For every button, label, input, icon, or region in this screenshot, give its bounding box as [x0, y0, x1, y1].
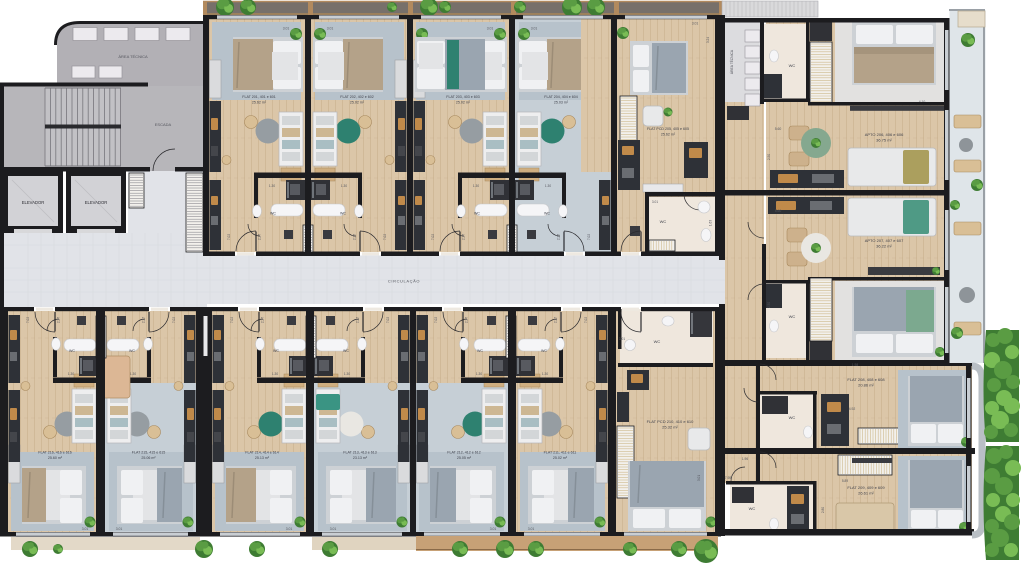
svg-text:7.02: 7.02 [383, 234, 387, 240]
svg-text:1.30: 1.30 [545, 184, 551, 188]
svg-text:WC: WC [340, 212, 346, 216]
svg-text:5.60: 5.60 [775, 209, 782, 213]
svg-text:3.01: 3.01 [116, 527, 123, 531]
svg-text:FLAT 209, 409 e 609: FLAT 209, 409 e 609 [847, 485, 885, 490]
svg-text:7.02: 7.02 [386, 317, 390, 323]
svg-text:7.02: 7.02 [434, 317, 438, 323]
svg-text:FLAT 215, 415 e 615: FLAT 215, 415 e 615 [132, 451, 165, 455]
svg-text:1.63: 1.63 [709, 220, 713, 226]
svg-text:1.30: 1.30 [269, 184, 275, 188]
svg-text:2.27: 2.27 [142, 317, 146, 323]
svg-text:FLAT 208, 408 e 608: FLAT 208, 408 e 608 [847, 377, 885, 382]
svg-text:FLAT 203, 403 e 603: FLAT 203, 403 e 603 [446, 95, 479, 99]
svg-text:FLAT 201, 401 e 601: FLAT 201, 401 e 601 [242, 95, 275, 99]
svg-text:2.27: 2.27 [462, 234, 466, 240]
svg-text:WC: WC [129, 349, 135, 353]
svg-text:3.01: 3.01 [528, 527, 535, 531]
svg-text:FLAT PCD 210, 410 e 610: FLAT PCD 210, 410 e 610 [647, 419, 695, 424]
svg-text:1.30: 1.30 [476, 372, 482, 376]
svg-text:1.98: 1.98 [852, 363, 858, 367]
svg-text:3.01: 3.01 [286, 527, 293, 531]
svg-text:26.61 m²: 26.61 m² [858, 491, 874, 496]
svg-text:1.30: 1.30 [272, 372, 278, 376]
svg-text:25.60 m²: 25.60 m² [48, 456, 63, 460]
svg-text:WC: WC [477, 349, 483, 353]
svg-text:1.30: 1.30 [341, 184, 347, 188]
svg-text:25.02 m²: 25.02 m² [553, 456, 568, 460]
svg-text:3.01: 3.01 [283, 27, 290, 31]
svg-text:CIRCULAÇÃO: CIRCULAÇÃO [388, 279, 420, 284]
svg-text:7.02: 7.02 [172, 317, 176, 323]
svg-text:36.75 m²: 36.75 m² [876, 138, 892, 143]
svg-text:FLAT 213, 413 e 613: FLAT 213, 413 e 613 [343, 451, 376, 455]
svg-text:WC: WC [789, 314, 796, 319]
svg-text:2.50: 2.50 [767, 302, 771, 308]
svg-text:3.01: 3.01 [619, 337, 625, 341]
svg-text:4.92: 4.92 [849, 407, 856, 411]
svg-text:2.27: 2.27 [356, 317, 360, 323]
svg-text:2.80: 2.80 [821, 507, 825, 513]
svg-text:25.32 m²: 25.32 m² [662, 425, 678, 430]
svg-text:2.50: 2.50 [767, 154, 771, 160]
svg-text:20.86 m²: 20.86 m² [858, 383, 874, 388]
svg-text:3.01: 3.01 [327, 27, 334, 31]
svg-text:FLAT PCD 205, 405 e 605: FLAT PCD 205, 405 e 605 [647, 127, 689, 131]
svg-text:WC: WC [789, 63, 796, 68]
svg-text:2.27: 2.27 [258, 234, 262, 240]
svg-text:1.30: 1.30 [473, 184, 479, 188]
svg-text:1.30: 1.30 [344, 372, 350, 376]
svg-text:25.05 m²: 25.05 m² [457, 456, 472, 460]
svg-text:7.02: 7.02 [26, 317, 30, 323]
svg-text:5.60: 5.60 [775, 127, 782, 131]
svg-text:WC: WC [69, 349, 75, 353]
svg-text:2.27: 2.27 [261, 317, 265, 323]
svg-text:WC: WC [749, 506, 756, 511]
svg-text:APTO 206, 406 e 606: APTO 206, 406 e 606 [865, 132, 904, 137]
svg-text:7.02: 7.02 [227, 234, 231, 240]
svg-text:FLAT 204, 404 e 604: FLAT 204, 404 e 604 [544, 95, 577, 99]
svg-text:ÁREA TÉCNICA: ÁREA TÉCNICA [118, 54, 148, 59]
svg-text:3.01: 3.01 [82, 527, 89, 531]
svg-text:FLAT 202, 402 e 602: FLAT 202, 402 e 602 [340, 95, 373, 99]
svg-text:3.24: 3.24 [706, 37, 710, 43]
svg-text:25.62 m²: 25.62 m² [252, 101, 267, 105]
svg-text:1.30: 1.30 [130, 372, 136, 376]
svg-text:3.01: 3.01 [697, 475, 701, 481]
svg-text:25.13 m²: 25.13 m² [255, 456, 270, 460]
svg-text:7.02: 7.02 [587, 234, 591, 240]
svg-text:2.27: 2.27 [554, 317, 558, 323]
svg-text:1.30: 1.30 [542, 372, 548, 376]
svg-text:ESCADA: ESCADA [155, 122, 172, 127]
svg-text:7.95: 7.95 [725, 476, 732, 480]
svg-text:23.13 m²: 23.13 m² [353, 456, 368, 460]
svg-text:FLAT 214, 414 e 614: FLAT 214, 414 e 614 [245, 451, 278, 455]
svg-text:3.01: 3.01 [692, 22, 699, 26]
svg-text:25.06 m²: 25.06 m² [141, 456, 156, 460]
svg-text:ELEVADOR: ELEVADOR [85, 200, 108, 205]
svg-text:2.27: 2.27 [557, 234, 561, 240]
svg-text:3.01: 3.01 [487, 27, 494, 31]
svg-text:WC: WC [654, 339, 661, 344]
svg-text:WC: WC [270, 212, 276, 216]
svg-text:25.62 m²: 25.62 m² [661, 133, 676, 137]
svg-text:FLAT 216, 416 e 616: FLAT 216, 416 e 616 [38, 451, 71, 455]
svg-text:25.02 m²: 25.02 m² [456, 101, 471, 105]
svg-text:3.01: 3.01 [490, 527, 497, 531]
svg-text:FLAT 212, 412 e 612: FLAT 212, 412 e 612 [447, 451, 480, 455]
svg-text:WC: WC [544, 212, 550, 216]
svg-text:WC: WC [343, 349, 349, 353]
svg-text:ELEVADOR: ELEVADOR [22, 200, 45, 205]
svg-text:36.22 m²: 36.22 m² [876, 244, 892, 249]
svg-text:WC: WC [541, 349, 547, 353]
svg-text:2.27: 2.27 [57, 317, 61, 323]
svg-text:FLAT 211, 411 e 611: FLAT 211, 411 e 611 [544, 451, 577, 455]
svg-text:APTO 207, 407 e 607: APTO 207, 407 e 607 [865, 238, 904, 243]
svg-text:2.27: 2.27 [353, 234, 357, 240]
svg-text:7.02: 7.02 [584, 317, 588, 323]
svg-text:7.02: 7.02 [230, 317, 234, 323]
svg-text:25.03 m²: 25.03 m² [554, 101, 569, 105]
svg-text:3.01: 3.01 [330, 527, 337, 531]
svg-text:1.30: 1.30 [68, 372, 74, 376]
svg-text:WC: WC [660, 219, 667, 224]
svg-text:3.01: 3.01 [652, 200, 658, 204]
svg-text:7.02: 7.02 [431, 234, 435, 240]
svg-text:ÁREA TÉCNICA: ÁREA TÉCNICA [729, 49, 734, 74]
svg-text:WC: WC [474, 212, 480, 216]
svg-text:2.27: 2.27 [465, 317, 469, 323]
svg-text:WC: WC [273, 349, 279, 353]
svg-text:5.89: 5.89 [842, 479, 848, 483]
svg-text:1.96: 1.96 [742, 457, 748, 461]
svg-text:25.02 m²: 25.02 m² [350, 101, 365, 105]
svg-text:WC: WC [789, 415, 796, 420]
svg-text:3.01: 3.01 [531, 27, 538, 31]
